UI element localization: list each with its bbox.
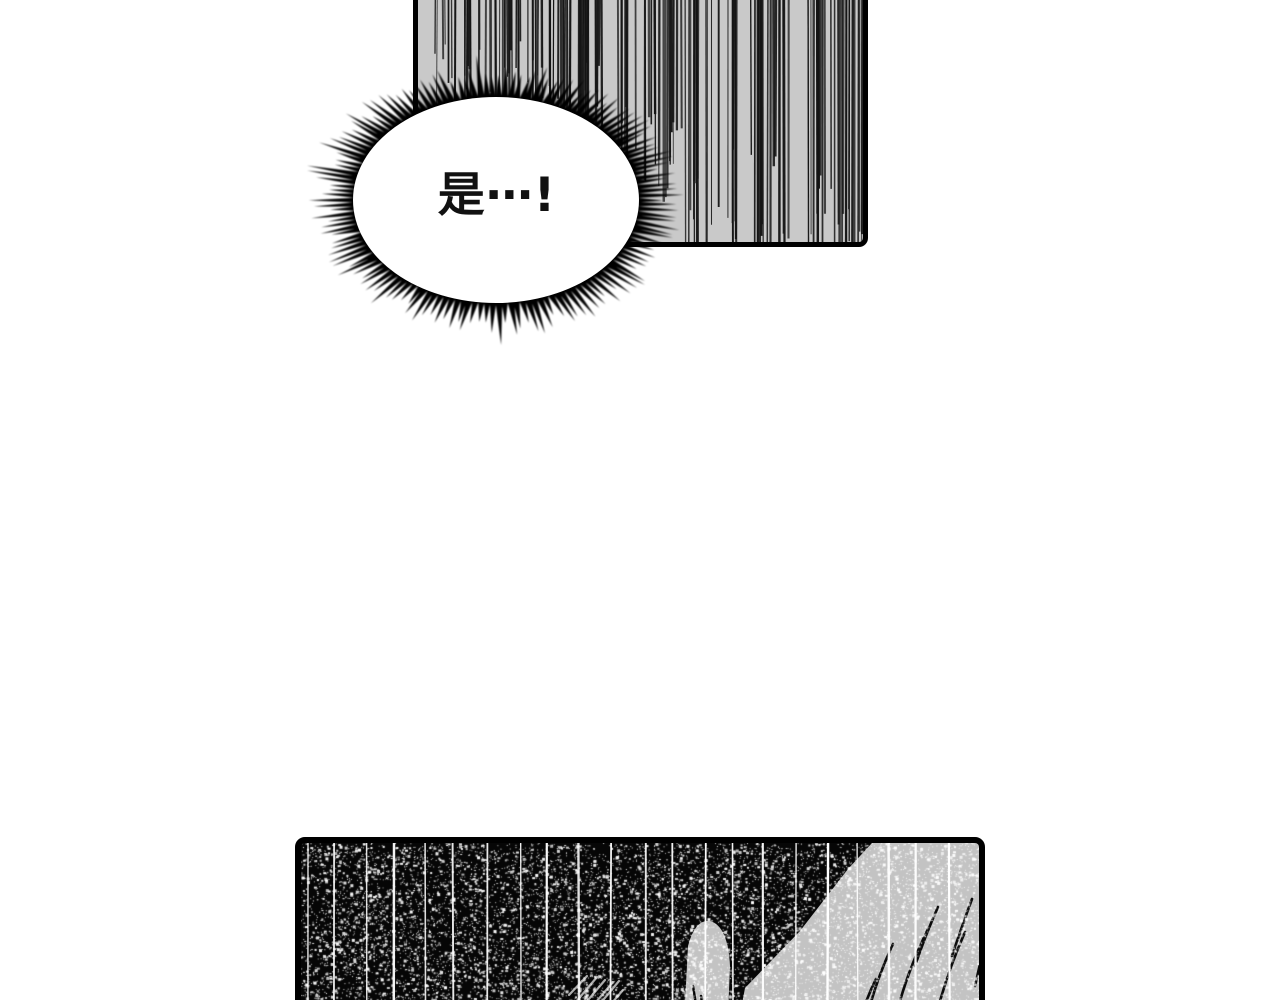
comic-page: 是⋯! <box>0 0 1280 1000</box>
vertical-white-streaks <box>301 843 979 1000</box>
speech-bubble-text: 是⋯! <box>347 167 647 225</box>
panel-dark-impact <box>295 837 985 1000</box>
